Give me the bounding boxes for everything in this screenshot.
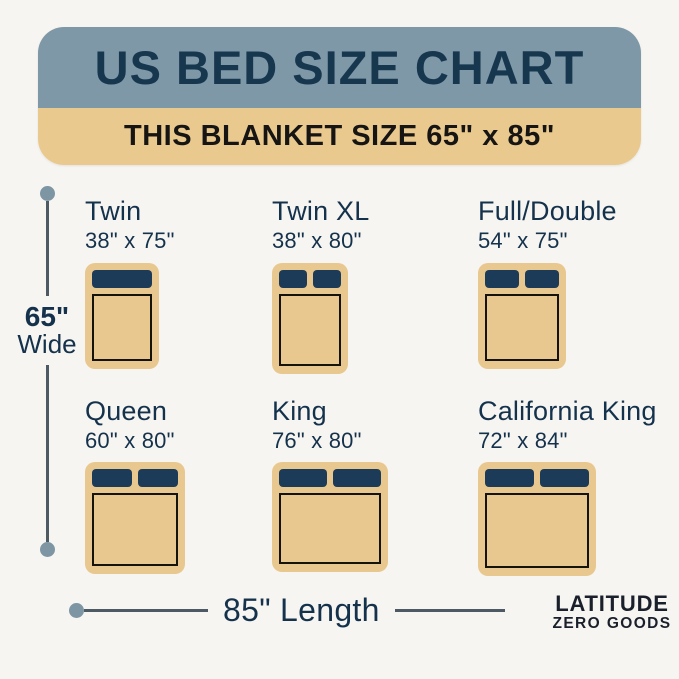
bed-pillow — [540, 469, 589, 487]
bed-pillows — [92, 270, 152, 288]
bed-pillow — [525, 270, 559, 288]
blanket-size-band: THIS BLANKET SIZE 65" x 85" — [38, 108, 641, 165]
bed-name: Twin — [85, 196, 272, 226]
bed-sheet — [279, 294, 341, 366]
bed-card: Twin 38" x 75" — [85, 196, 272, 374]
bed-card: California King 72" x 84" — [478, 396, 679, 577]
bed-dimensions: 60" x 80" — [85, 428, 272, 453]
bed-sheet — [485, 493, 589, 568]
header-banner: US BED SIZE CHART THIS BLANKET SIZE 65" … — [38, 27, 641, 165]
bed-icon — [85, 263, 159, 369]
brand-logo: LATITUDE ZERO GOODS — [552, 592, 672, 634]
bed-pillow — [92, 270, 152, 288]
bed-sheet — [92, 493, 178, 566]
width-word: Wide — [17, 331, 76, 358]
bed-pillow — [279, 469, 327, 487]
length-line-left — [84, 609, 208, 612]
width-value: 65" — [17, 302, 76, 331]
length-line-right — [395, 609, 505, 612]
bed-sheet — [279, 493, 381, 564]
bed-card: Full/Double 54" x 75" — [478, 196, 679, 374]
bed-name: Queen — [85, 396, 272, 426]
bed-icon — [478, 462, 596, 576]
width-line-lower — [46, 365, 49, 542]
bed-name: Twin XL — [272, 196, 478, 226]
bed-sheet — [485, 294, 559, 361]
chart-title: US BED SIZE CHART — [95, 40, 585, 95]
bed-pillow — [313, 270, 341, 288]
brand-tagline: ZERO GOODS — [552, 615, 672, 634]
width-line-upper — [46, 201, 49, 296]
bed-name: Full/Double — [478, 196, 679, 226]
bed-pillows — [279, 469, 381, 487]
bed-pillows — [279, 270, 341, 288]
bed-icon — [272, 462, 388, 572]
bed-size-chart: US BED SIZE CHART THIS BLANKET SIZE 65" … — [0, 0, 679, 679]
bed-sheet — [92, 294, 152, 361]
bed-icon — [85, 462, 185, 574]
bed-card: Queen 60" x 80" — [85, 396, 272, 577]
width-dot-bottom — [40, 542, 55, 557]
bed-dimensions: 38" x 80" — [272, 228, 478, 253]
length-dimension-line: 85" Length — [69, 588, 505, 632]
width-dot-top — [40, 186, 55, 201]
bed-card: Twin XL 38" x 80" — [272, 196, 478, 374]
bed-pillows — [485, 270, 559, 288]
bed-pillow — [333, 469, 381, 487]
bed-name: King — [272, 396, 478, 426]
length-label: 85" Length — [223, 592, 380, 629]
bed-pillow — [485, 270, 519, 288]
bed-pillow — [485, 469, 534, 487]
width-dimension-rail: 65" Wide — [39, 186, 55, 557]
bed-name: California King — [478, 396, 679, 426]
bed-dimensions: 76" x 80" — [272, 428, 478, 453]
chart-title-band: US BED SIZE CHART — [38, 27, 641, 108]
bed-icon — [478, 263, 566, 369]
length-dot-left — [69, 603, 84, 618]
bed-grid: Twin 38" x 75" Twin XL 38" x 80" Full/Do… — [85, 196, 679, 576]
brand-name: LATITUDE — [552, 592, 672, 615]
bed-card: King 76" x 80" — [272, 396, 478, 577]
bed-dimensions: 72" x 84" — [478, 428, 679, 453]
bed-dimensions: 38" x 75" — [85, 228, 272, 253]
width-label: 65" Wide — [17, 296, 76, 365]
bed-pillows — [92, 469, 178, 487]
bed-pillow — [138, 469, 178, 487]
bed-icon — [272, 263, 348, 374]
bed-dimensions: 54" x 75" — [478, 228, 679, 253]
bed-pillow — [92, 469, 132, 487]
bed-pillow — [279, 270, 307, 288]
bed-pillows — [485, 469, 589, 487]
blanket-size-label: THIS BLANKET SIZE 65" x 85" — [124, 120, 555, 153]
